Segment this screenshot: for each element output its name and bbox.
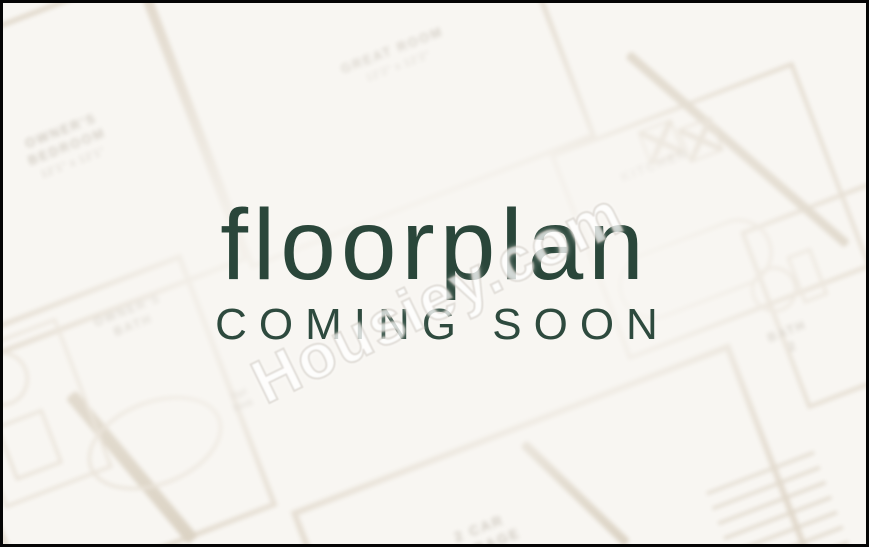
coming-soon-placeholder: OWNER'S BEDROOM 12'1" x 12'1" GREAT ROOM… [0,0,869,547]
